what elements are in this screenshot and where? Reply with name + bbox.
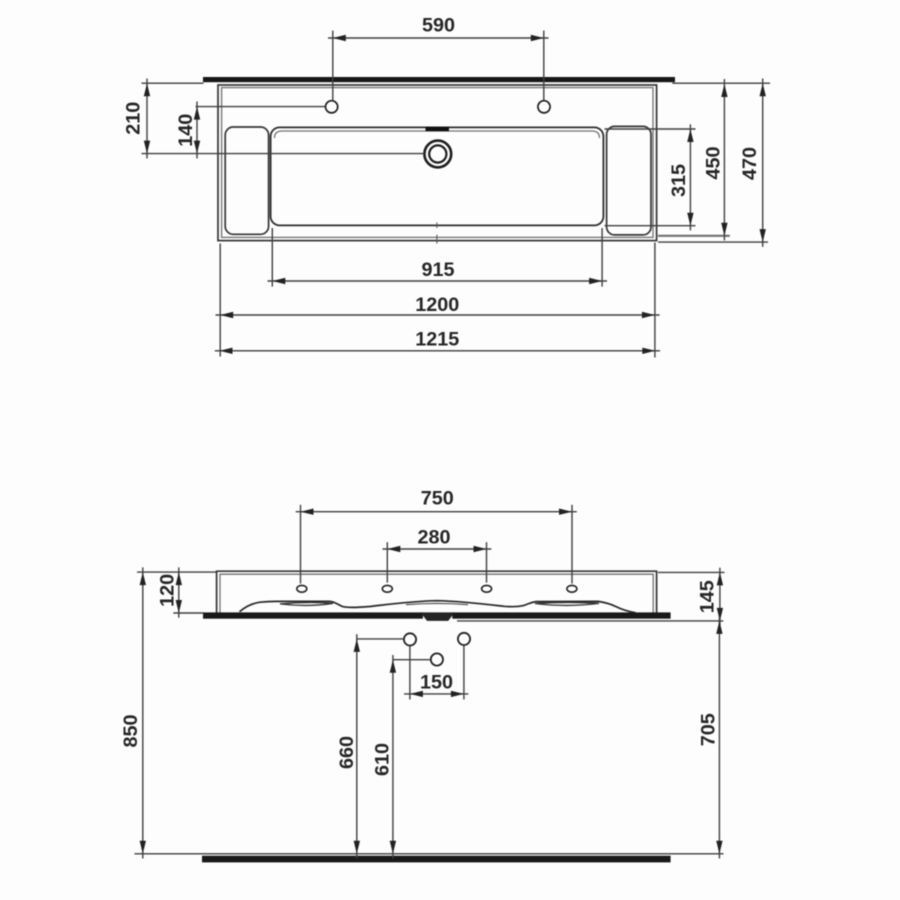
svg-text:1200: 1200 — [415, 294, 459, 316]
svg-text:140: 140 — [175, 114, 197, 147]
svg-text:750: 750 — [421, 487, 454, 509]
svg-text:450: 450 — [703, 146, 725, 179]
svg-text:1215: 1215 — [415, 329, 459, 351]
svg-text:315: 315 — [668, 164, 690, 197]
svg-text:470: 470 — [739, 147, 761, 180]
svg-text:610: 610 — [372, 743, 394, 776]
svg-text:120: 120 — [156, 574, 178, 607]
svg-text:145: 145 — [697, 580, 719, 613]
svg-text:590: 590 — [422, 15, 455, 37]
svg-text:280: 280 — [417, 527, 450, 549]
svg-text:705: 705 — [698, 713, 720, 746]
svg-text:210: 210 — [123, 102, 145, 135]
svg-text:660: 660 — [336, 736, 358, 769]
svg-text:850: 850 — [120, 714, 142, 747]
svg-text:150: 150 — [420, 671, 453, 693]
svg-text:915: 915 — [421, 259, 454, 281]
